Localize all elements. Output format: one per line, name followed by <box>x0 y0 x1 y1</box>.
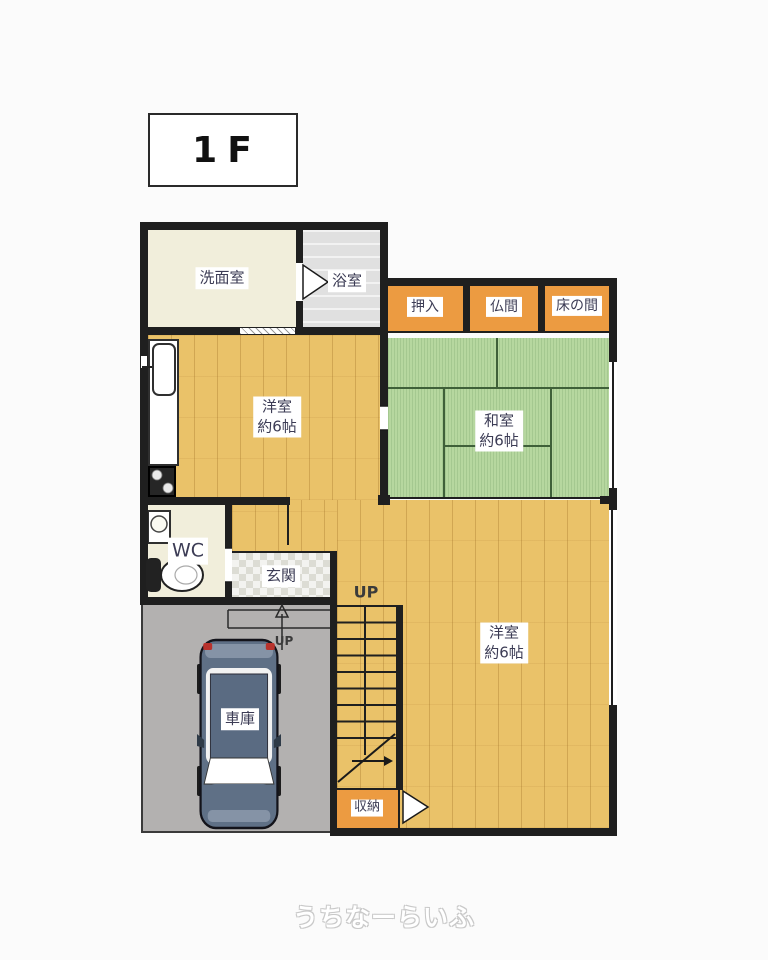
tatami-seam <box>443 388 445 497</box>
wall <box>140 497 290 505</box>
tatami-seam <box>388 387 609 389</box>
wall <box>463 286 470 331</box>
japanese-room-name: 和室 <box>479 412 519 432</box>
western-room-kitchen-name: 洋室 <box>257 398 297 418</box>
storage-edge-line <box>398 790 400 828</box>
kitchen-sink <box>152 343 176 396</box>
toilet-door-opening <box>225 548 232 582</box>
door-leaf-line <box>287 505 289 545</box>
room-opening <box>380 406 388 430</box>
window-hatch <box>240 328 295 334</box>
western-room-kitchen-size: 約6帖 <box>257 417 297 437</box>
wall <box>330 828 617 836</box>
window-line <box>612 362 614 488</box>
closet-label: 押入 <box>407 297 443 317</box>
western-room-south-size: 約6帖 <box>484 643 524 663</box>
tatami-seam <box>496 338 498 388</box>
floor-indicator: 1F <box>148 113 298 187</box>
bath-door-opening <box>296 263 303 301</box>
wall <box>538 286 545 331</box>
wall <box>378 495 390 505</box>
entrance-step-up-label: UP <box>275 634 294 648</box>
wall <box>396 605 403 790</box>
floor-indicator-label: 1F <box>192 130 262 171</box>
window-line <box>611 510 613 705</box>
butsuma-label: 仏間 <box>486 297 522 317</box>
site-watermark: うちなーらいふ <box>293 898 475 934</box>
wall <box>330 551 337 836</box>
bathroom-label: 浴室 <box>328 270 366 292</box>
toilet-label: WC <box>168 538 208 565</box>
hallway-floor <box>232 500 337 553</box>
entrance-edge-line <box>232 551 330 553</box>
stair-treads <box>337 605 396 739</box>
garage-label: 車庫 <box>221 708 259 730</box>
storage-edge-line <box>337 788 399 790</box>
stove <box>148 466 176 497</box>
wall <box>380 278 617 286</box>
wall <box>140 222 388 230</box>
wall <box>140 597 337 605</box>
wall <box>140 222 148 605</box>
floorplan-page: 1F 洗面室 浴室 押入 仏間 床の間 和室 約6帖 洋室 約6帖 洋室 約6帖… <box>0 0 768 960</box>
japanese-room-label: 和室 約6帖 <box>475 411 523 452</box>
tokonoma-label: 床の間 <box>552 296 602 316</box>
japanese-room-size: 約6帖 <box>479 431 519 451</box>
kitchen-window <box>141 356 147 368</box>
car-top-view <box>197 638 281 830</box>
sliding-door-line <box>388 497 609 499</box>
western-room-kitchen-label: 洋室 約6帖 <box>253 397 301 438</box>
washroom-label: 洗面室 <box>195 267 248 289</box>
western-room-south-name: 洋室 <box>484 624 524 644</box>
wall <box>600 496 617 504</box>
storage-label: 収納 <box>351 800 383 817</box>
tatami-seam <box>550 388 552 497</box>
stair-center-line <box>364 605 366 755</box>
sliding-door-line <box>388 331 609 333</box>
stairs-up-label: UP <box>354 583 379 602</box>
entrance-label: 玄関 <box>262 565 300 587</box>
western-room-south-label: 洋室 約6帖 <box>480 623 528 664</box>
